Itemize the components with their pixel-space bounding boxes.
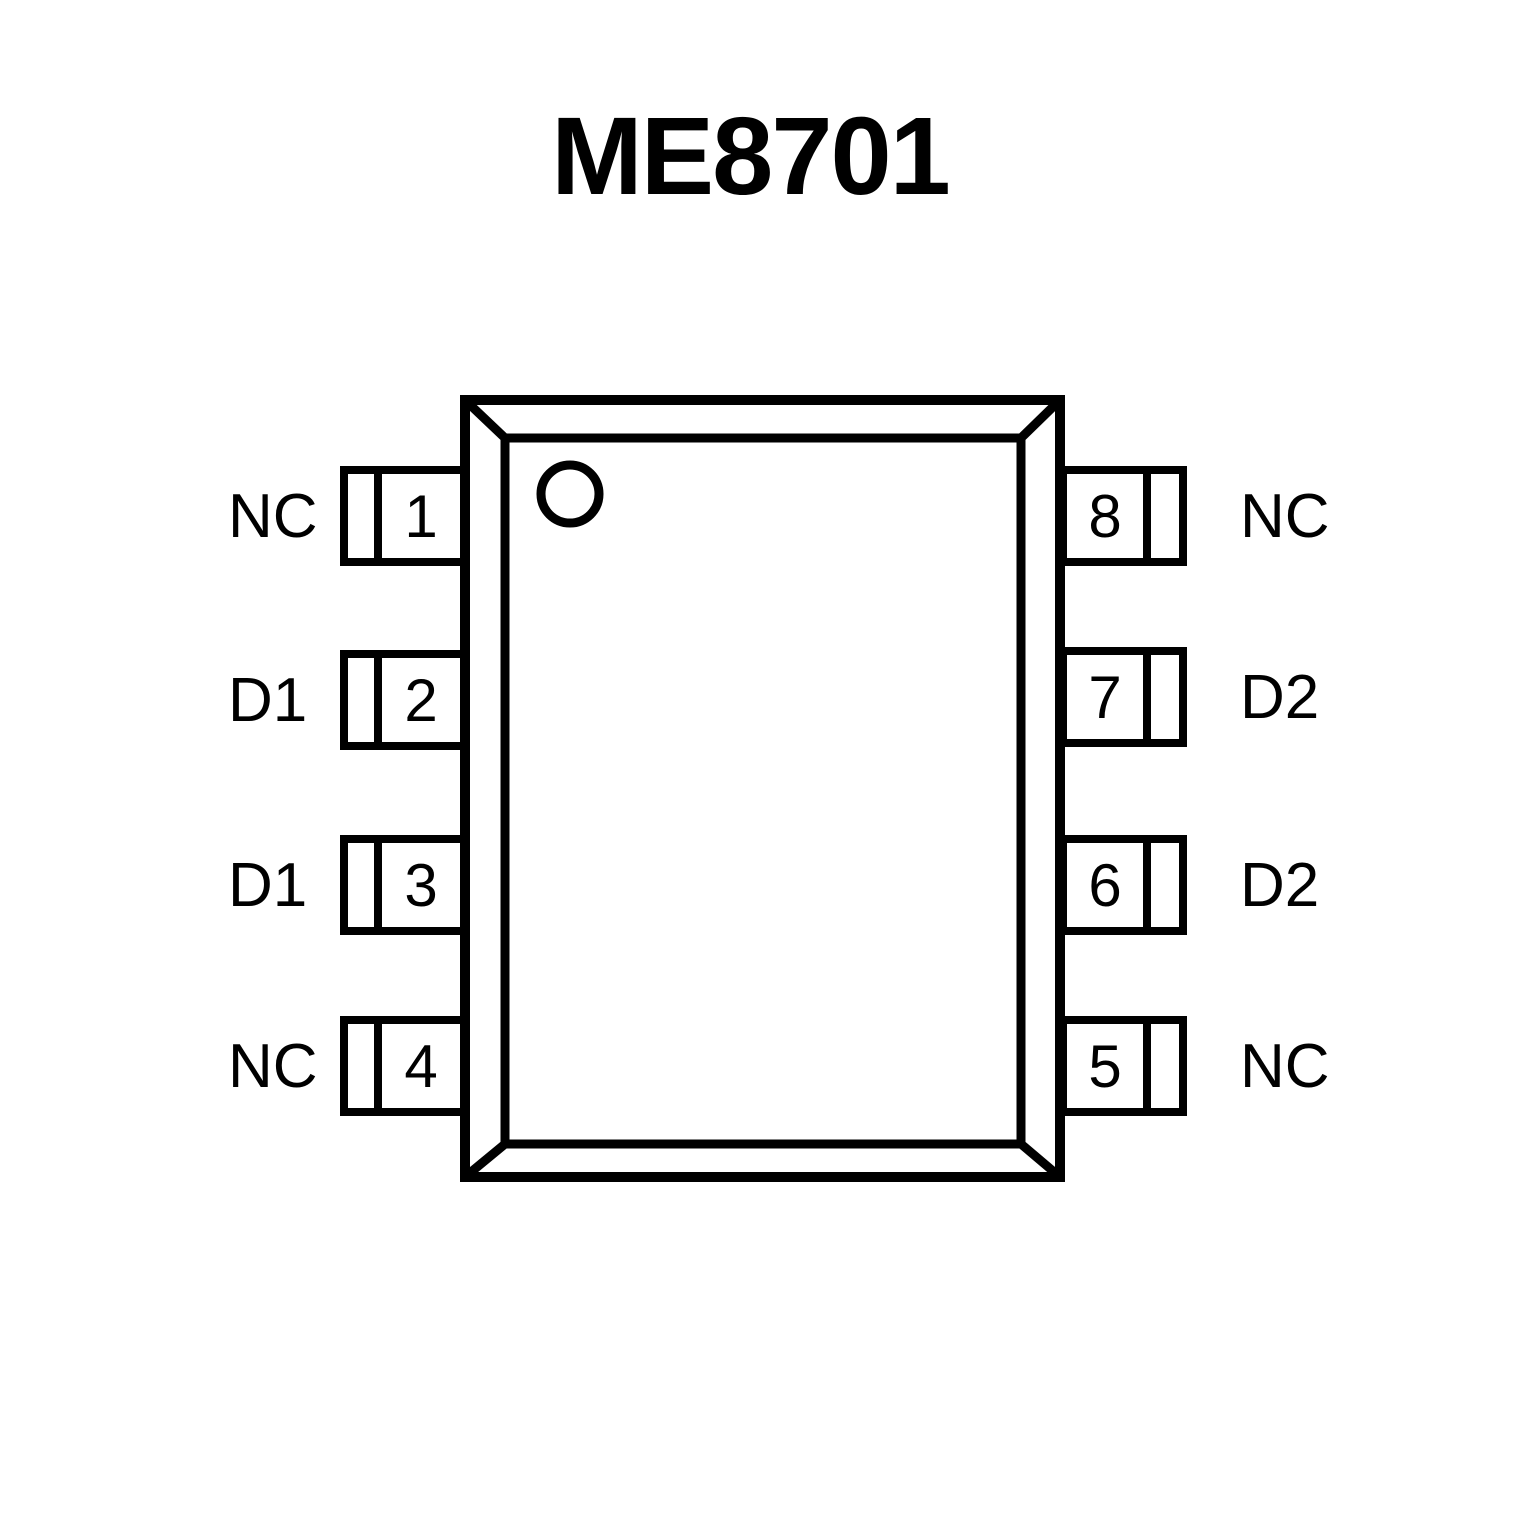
pin-label-6: D2	[1240, 835, 1319, 935]
chip-body	[460, 390, 1065, 1190]
pin-number-3: 3	[382, 843, 460, 927]
pin-divider-7	[1143, 655, 1151, 739]
pin-divider-8	[1143, 474, 1151, 558]
pin-number-7: 7	[1067, 655, 1143, 739]
pin-label-8: NC	[1240, 466, 1330, 566]
pin-number-8: 8	[1067, 474, 1143, 558]
pin-number-6: 6	[1067, 843, 1143, 927]
pin-label-1: NC	[228, 466, 318, 566]
pinout-diagram: ME8701 NC 1 D1 2 D1 3 NC 4 NC 8 D2 7 D2	[0, 0, 1535, 1535]
pin1-indicator-circle	[541, 465, 599, 523]
pin-label-5: NC	[1240, 1016, 1330, 1116]
pin-box-1: 1	[340, 466, 468, 566]
pin-number-5: 5	[1067, 1024, 1143, 1108]
pin-box-2: 2	[340, 650, 468, 750]
pin-box-7: 7	[1059, 647, 1187, 747]
pin-divider-6	[1143, 843, 1151, 927]
pin-label-4: NC	[228, 1016, 318, 1116]
chip-inner-edge	[505, 438, 1021, 1144]
pin-box-8: 8	[1059, 466, 1187, 566]
pin-divider-4	[374, 1024, 382, 1108]
part-number-title: ME8701	[0, 102, 1500, 212]
pin-label-7: D2	[1240, 647, 1319, 747]
pin-box-3: 3	[340, 835, 468, 935]
pin-divider-3	[374, 843, 382, 927]
pin-box-6: 6	[1059, 835, 1187, 935]
pin-label-3: D1	[228, 835, 307, 935]
pin-divider-1	[374, 474, 382, 558]
pin-number-2: 2	[382, 658, 460, 742]
pin-divider-5	[1143, 1024, 1151, 1108]
pin-label-2: D1	[228, 650, 307, 750]
pin-divider-2	[374, 658, 382, 742]
pin-box-5: 5	[1059, 1016, 1187, 1116]
pin-number-4: 4	[382, 1024, 460, 1108]
pin-box-4: 4	[340, 1016, 468, 1116]
pin-number-1: 1	[382, 474, 460, 558]
